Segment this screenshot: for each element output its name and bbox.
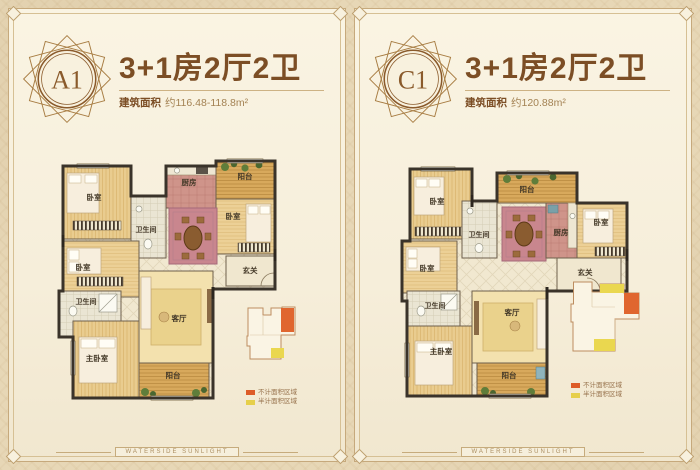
room-label-bathroom-upper: 卫生间 <box>469 230 490 239</box>
room-bedroom-right <box>577 203 627 258</box>
room-balcony-bottom <box>139 363 209 398</box>
room-label-living: 客厅 <box>171 313 187 323</box>
area-prefix: 建筑面积 <box>119 97 161 109</box>
ribbon-line <box>243 452 298 453</box>
room-kitchen <box>166 166 216 208</box>
keyplan-yellow-area <box>271 348 284 358</box>
keyplan-orange-area <box>281 308 294 332</box>
room-label-kitchen: 厨房 <box>554 227 569 237</box>
corner-ornament-icon <box>333 6 349 22</box>
ribbon-text: WATERSIDE SUNLIGHT <box>461 447 584 457</box>
footer-ribbon: WATERSIDE SUNLIGHT <box>9 447 345 457</box>
title-divider <box>119 90 324 91</box>
ribbon-text: WATERSIDE SUNLIGHT <box>115 447 238 457</box>
room-label-hall: 玄关 <box>578 267 593 277</box>
room-label-bathroom-upper: 卫生间 <box>136 225 157 234</box>
room-label-hall: 玄关 <box>243 265 258 275</box>
badge-label: C1 <box>398 66 428 95</box>
keyplan-yellow-area <box>594 339 615 351</box>
footer-ribbon: WATERSIDE SUNLIGHT <box>355 447 691 457</box>
area-value: 约116.48-118.8m² <box>165 97 248 109</box>
room-label-master-bedroom: 主卧室 <box>86 353 109 363</box>
room-label-bedroom-mid-left: 卧室 <box>420 263 435 273</box>
badge-label: A1 <box>51 66 83 95</box>
room-bedroom-right <box>216 199 275 254</box>
rosette-badge: C1 <box>367 33 459 125</box>
legend-label-orange: 不计面积区域 <box>583 381 622 390</box>
room-label-balcony-top: 阳台 <box>238 171 253 181</box>
room-bedroom-mid-left <box>63 241 139 297</box>
title-divider <box>465 90 670 91</box>
area-prefix: 建筑面积 <box>465 97 507 109</box>
ribbon-line <box>589 452 644 453</box>
room-label-balcony-bottom: 阳台 <box>502 370 517 380</box>
room-label-bedroom-right: 卧室 <box>226 211 241 221</box>
legend-label-orange: 不计面积区域 <box>258 388 297 397</box>
title-block: 3+1房2厅2卫 建筑面积约120.88m² <box>465 53 680 110</box>
room-label-bedroom-top-left: 卧室 <box>430 196 445 206</box>
area-value: 约120.88m² <box>511 97 566 109</box>
room-master-bedroom <box>407 326 472 396</box>
legend-label-yellow: 半计面积区域 <box>583 390 622 399</box>
floorplan-panel-c1: C1 3+1房2厅2卫 建筑面积约120.88m² <box>354 8 692 462</box>
legend-yellow-chip-icon <box>246 400 255 405</box>
legend-yellow-chip-icon <box>571 393 580 398</box>
page-title: 3+1房2厅2卫 <box>119 53 334 85</box>
keyplan-orange-area <box>624 293 639 314</box>
ribbon-line <box>402 452 457 453</box>
keyplan-legend: 不计面积区域 半计面积区域 <box>246 388 297 407</box>
dining-area <box>502 207 546 261</box>
title-block: 3+1房2厅2卫 建筑面积约116.48-118.8m² <box>119 53 334 110</box>
brochure-page: A1 3+1房2厅2卫 建筑面积约116.48-118.8m² <box>0 0 700 470</box>
room-label-balcony-bottom: 阳台 <box>166 370 181 380</box>
page-title: 3+1房2厅2卫 <box>465 53 680 85</box>
corner-ornament-icon <box>352 6 368 22</box>
room-bathroom-upper <box>462 201 497 258</box>
legend-orange-chip-icon <box>246 390 255 395</box>
area-line: 建筑面积约116.48-118.8m² <box>119 95 334 110</box>
room-label-kitchen: 厨房 <box>182 177 197 187</box>
keyplan-inset <box>245 305 302 383</box>
room-label-bedroom-top-left: 卧室 <box>87 192 102 202</box>
keyplan-inset <box>569 277 649 372</box>
room-balcony-top <box>497 173 577 203</box>
dining-area <box>169 208 217 264</box>
floorplan-panel-a1: A1 3+1房2厅2卫 建筑面积约116.48-118.8m² <box>8 8 346 462</box>
rosette-badge: A1 <box>21 33 113 125</box>
room-label-master-bedroom: 主卧室 <box>430 346 453 356</box>
legend-orange-chip-icon <box>571 383 580 388</box>
room-label-bedroom-right: 卧室 <box>594 217 609 227</box>
area-line: 建筑面积约120.88m² <box>465 95 680 110</box>
corner-ornament-icon <box>6 6 22 22</box>
legend-label-yellow: 半计面积区域 <box>258 397 297 406</box>
room-bedroom-top-left <box>63 166 131 239</box>
ribbon-line <box>56 452 111 453</box>
keyplan-legend: 不计面积区域 半计面积区域 <box>571 381 622 400</box>
room-label-bathroom-lower: 卫生间 <box>425 301 446 310</box>
room-label-bathroom-lower: 卫生间 <box>76 297 97 306</box>
room-label-living: 客厅 <box>504 307 520 317</box>
corner-ornament-icon <box>679 6 695 22</box>
room-label-balcony-top: 阳台 <box>520 184 535 194</box>
keyplan-yellow-area <box>600 284 624 293</box>
room-label-bedroom-mid-left: 卧室 <box>76 262 91 272</box>
room-living <box>472 291 547 363</box>
